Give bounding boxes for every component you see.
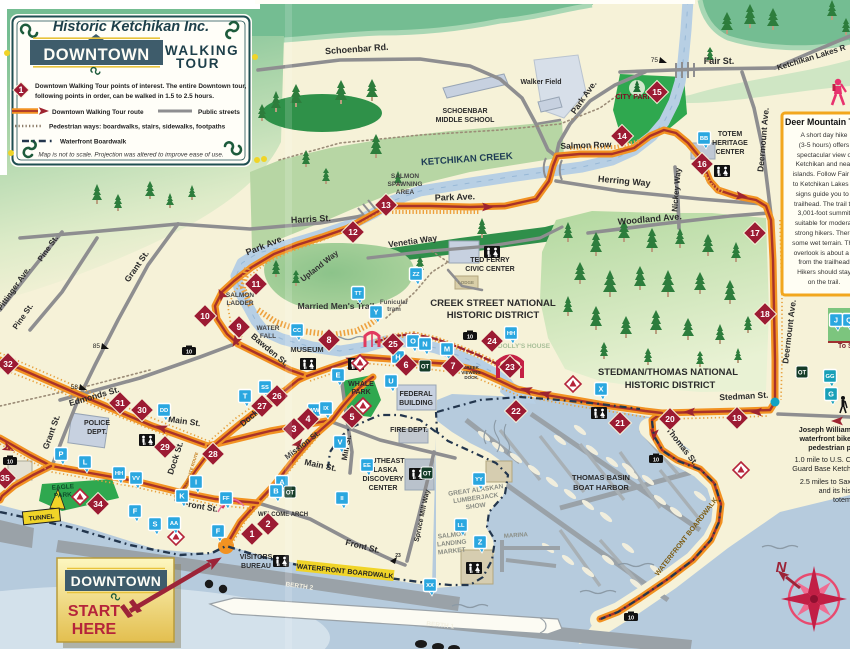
svg-text:ZZ: ZZ bbox=[412, 272, 420, 278]
svg-text:FF: FF bbox=[222, 496, 230, 502]
svg-text:Harris St.: Harris St. bbox=[291, 213, 331, 225]
svg-text:F: F bbox=[133, 507, 138, 516]
svg-text:VV: VV bbox=[132, 476, 140, 482]
svg-text:12: 12 bbox=[348, 227, 358, 237]
svg-text:and its his: and its his bbox=[819, 486, 850, 495]
svg-text:VISITORS: VISITORS bbox=[240, 554, 273, 561]
svg-text:15: 15 bbox=[652, 87, 662, 97]
svg-text:Guard Base Ketch: Guard Base Ketch bbox=[792, 464, 850, 473]
svg-text:24: 24 bbox=[487, 336, 497, 346]
svg-text:Park Ave.: Park Ave. bbox=[435, 191, 476, 202]
svg-text:TOTEM: TOTEM bbox=[718, 131, 743, 138]
svg-text:X: X bbox=[598, 385, 603, 394]
svg-text:Z: Z bbox=[478, 538, 483, 547]
svg-text:9: 9 bbox=[236, 322, 241, 332]
svg-text:trailhead. The trail to: trailhead. The trail to bbox=[794, 201, 850, 208]
svg-text:20: 20 bbox=[665, 414, 675, 424]
svg-text:Historic Ketchikan Inc.: Historic Ketchikan Inc. bbox=[53, 19, 209, 35]
svg-text:IX: IX bbox=[323, 406, 329, 412]
svg-text:S: S bbox=[152, 520, 157, 529]
svg-text:SALMON: SALMON bbox=[391, 173, 419, 180]
svg-text:BOAT HARBOR: BOAT HARBOR bbox=[573, 483, 629, 492]
svg-text:22: 22 bbox=[511, 406, 521, 416]
svg-text:PARK: PARK bbox=[54, 491, 73, 499]
svg-text:Downtown Walking Tour points o: Downtown Walking Tour points of interest… bbox=[35, 83, 246, 90]
svg-text:10: 10 bbox=[653, 457, 659, 463]
svg-text:OT: OT bbox=[423, 471, 432, 477]
svg-text:35: 35 bbox=[0, 473, 10, 483]
svg-text:CENTER: CENTER bbox=[369, 485, 398, 492]
svg-text:N: N bbox=[776, 559, 788, 576]
svg-text:DOWNTOWN: DOWNTOWN bbox=[43, 46, 149, 64]
svg-text:LL: LL bbox=[457, 523, 465, 529]
svg-text:Deer Mountain T: Deer Mountain T bbox=[785, 117, 850, 127]
svg-text:To S: To S bbox=[838, 343, 850, 350]
svg-text:10: 10 bbox=[467, 334, 473, 340]
svg-text:27: 27 bbox=[257, 401, 267, 411]
svg-text:DOCK: DOCK bbox=[464, 375, 478, 380]
svg-text:CIVIC CENTER: CIVIC CENTER bbox=[465, 266, 514, 273]
svg-text:2: 2 bbox=[265, 519, 270, 529]
svg-text:21: 21 bbox=[615, 418, 625, 428]
svg-text:SALMON: SALMON bbox=[226, 292, 254, 299]
svg-text:FEDERAL: FEDERAL bbox=[399, 391, 433, 398]
svg-text:STEDMAN/THOMAS NATIONAL: STEDMAN/THOMAS NATIONAL bbox=[598, 366, 738, 377]
svg-text:HISTORIC DISTRICT: HISTORIC DISTRICT bbox=[447, 310, 540, 321]
svg-text:YY: YY bbox=[475, 477, 483, 483]
svg-text:totem: totem bbox=[833, 495, 850, 504]
svg-text:islands. Follow Fair S: islands. Follow Fair S bbox=[793, 171, 850, 178]
svg-text:I: I bbox=[195, 478, 197, 487]
svg-text:6: 6 bbox=[403, 360, 408, 370]
svg-text:Y: Y bbox=[373, 308, 378, 317]
svg-text:1: 1 bbox=[18, 85, 23, 95]
svg-text:FALL: FALL bbox=[260, 333, 276, 340]
svg-text:TOUR: TOUR bbox=[176, 56, 220, 71]
svg-text:2.5 miles to Sax: 2.5 miles to Sax bbox=[800, 477, 850, 486]
svg-text:strong hikers. There: strong hikers. There bbox=[795, 230, 850, 237]
svg-text:A short day hike: A short day hike bbox=[801, 132, 848, 139]
svg-text:19: 19 bbox=[732, 413, 742, 423]
svg-text:DD: DD bbox=[160, 408, 168, 414]
svg-text:M: M bbox=[444, 345, 450, 354]
svg-text:HH: HH bbox=[115, 471, 123, 477]
svg-text:Married Men's Trail: Married Men's Trail bbox=[298, 301, 375, 311]
svg-text:85: 85 bbox=[93, 343, 101, 350]
svg-text:HISTORIC DISTRICT: HISTORIC DISTRICT bbox=[625, 379, 716, 390]
svg-text:on the trail.: on the trail. bbox=[808, 279, 841, 286]
svg-text:14: 14 bbox=[617, 131, 627, 141]
svg-text:G: G bbox=[828, 390, 834, 399]
svg-text:8: 8 bbox=[326, 335, 331, 345]
svg-text:WHALE: WHALE bbox=[348, 381, 374, 388]
svg-text:29: 29 bbox=[160, 442, 170, 452]
svg-text:Downtown Walking Tour route: Downtown Walking Tour route bbox=[52, 109, 144, 116]
svg-text:AA: AA bbox=[170, 521, 179, 527]
svg-text:WATER: WATER bbox=[257, 325, 280, 332]
svg-text:SCHOENBAR: SCHOENBAR bbox=[442, 108, 487, 115]
svg-text:OT: OT bbox=[421, 364, 430, 370]
svg-text:CITY PARK: CITY PARK bbox=[615, 94, 652, 101]
svg-text:BB: BB bbox=[700, 136, 708, 142]
svg-text:17: 17 bbox=[750, 228, 760, 238]
svg-text:spectacular view o: spectacular view o bbox=[797, 152, 850, 159]
svg-text:CREEK STREET NATIONAL: CREEK STREET NATIONAL bbox=[430, 298, 556, 309]
svg-text:pedestrian p: pedestrian p bbox=[808, 443, 850, 452]
svg-text:16: 16 bbox=[697, 159, 707, 169]
svg-text:3,001-foot summit: 3,001-foot summit bbox=[798, 210, 850, 217]
svg-text:to Ketchikan Lakes R: to Ketchikan Lakes R bbox=[793, 181, 850, 188]
svg-text:(3-5 hours) offers: (3-5 hours) offers bbox=[799, 142, 850, 149]
svg-text:K: K bbox=[179, 492, 185, 501]
svg-text:some wet terrain. The: some wet terrain. The bbox=[792, 240, 850, 247]
svg-text:CENTER: CENTER bbox=[716, 149, 745, 156]
svg-text:following points in order, can: following points in order, can be walked… bbox=[35, 93, 214, 100]
svg-text:1.0 mile to U.S. C: 1.0 mile to U.S. C bbox=[795, 455, 850, 464]
svg-text:4: 4 bbox=[305, 414, 310, 424]
svg-text:10: 10 bbox=[186, 349, 192, 355]
svg-text:HH: HH bbox=[507, 331, 515, 337]
svg-text:13: 13 bbox=[381, 200, 391, 210]
svg-text:J: J bbox=[834, 316, 838, 325]
svg-text:MIDDLE SCHOOL: MIDDLE SCHOOL bbox=[436, 117, 495, 124]
svg-text:Salmon Row: Salmon Row bbox=[560, 139, 612, 151]
svg-text:HERITAGE: HERITAGE bbox=[712, 140, 748, 147]
svg-text:POLICE: POLICE bbox=[84, 420, 110, 427]
svg-text:V: V bbox=[337, 438, 342, 447]
svg-text:START: START bbox=[68, 603, 120, 620]
svg-text:suitable for moderat: suitable for moderat bbox=[795, 220, 850, 227]
svg-text:DOWNTOWN: DOWNTOWN bbox=[71, 573, 162, 589]
svg-text:OT: OT bbox=[798, 370, 807, 376]
svg-text:Funicular: Funicular bbox=[380, 299, 409, 306]
svg-text:Walker Field: Walker Field bbox=[521, 79, 562, 86]
svg-text:Hikers should stay: Hikers should stay bbox=[797, 269, 850, 276]
svg-text:T: T bbox=[243, 392, 248, 401]
svg-text:32: 32 bbox=[3, 359, 13, 369]
svg-text:SPAWNING: SPAWNING bbox=[388, 181, 423, 188]
svg-text:FIRE DEPT.: FIRE DEPT. bbox=[390, 427, 428, 434]
svg-text:II: II bbox=[340, 496, 344, 502]
svg-text:PARK: PARK bbox=[351, 389, 370, 396]
svg-text:1: 1 bbox=[249, 529, 254, 539]
svg-text:5: 5 bbox=[349, 412, 354, 422]
svg-text:DISCOVERY: DISCOVERY bbox=[363, 476, 404, 483]
svg-text:from the trailhead: from the trailhead bbox=[798, 259, 850, 266]
svg-text:Ketchikan and near: Ketchikan and near bbox=[796, 161, 850, 168]
svg-text:EE: EE bbox=[363, 463, 371, 469]
svg-text:25: 25 bbox=[388, 339, 398, 349]
svg-text:O: O bbox=[410, 337, 416, 346]
svg-text:CC: CC bbox=[293, 328, 302, 334]
svg-text:TED FERRY: TED FERRY bbox=[470, 257, 510, 264]
svg-text:F: F bbox=[216, 527, 221, 536]
svg-text:MUSEUM: MUSEUM bbox=[290, 345, 323, 354]
svg-text:LODGE: LODGE bbox=[458, 280, 474, 285]
svg-text:BUILDING: BUILDING bbox=[399, 400, 433, 407]
svg-text:HERE: HERE bbox=[72, 621, 117, 638]
svg-text:SS: SS bbox=[261, 385, 269, 391]
svg-text:Fair St.: Fair St. bbox=[704, 56, 735, 66]
svg-text:31: 31 bbox=[115, 398, 125, 408]
svg-text:P: P bbox=[58, 450, 63, 459]
svg-text:Map is not to scale. Projectio: Map is not to scale. Projection was alte… bbox=[38, 152, 223, 159]
svg-text:B: B bbox=[273, 487, 279, 496]
svg-text:DOLLY'S HOUSE: DOLLY'S HOUSE bbox=[498, 343, 551, 350]
svg-text:THOMAS BASIN: THOMAS BASIN bbox=[572, 473, 630, 482]
svg-text:34: 34 bbox=[93, 499, 103, 509]
svg-text:XX: XX bbox=[426, 583, 434, 589]
svg-text:DEPT.: DEPT. bbox=[87, 429, 107, 436]
svg-text:U: U bbox=[388, 377, 393, 386]
svg-text:Q: Q bbox=[846, 316, 850, 325]
svg-text:58: 58 bbox=[71, 384, 79, 391]
svg-text:18: 18 bbox=[760, 309, 770, 319]
svg-text:Waterfront Boardwalk: Waterfront Boardwalk bbox=[60, 139, 127, 146]
svg-text:Public streets: Public streets bbox=[198, 109, 240, 116]
svg-text:signs guide you to t: signs guide you to t bbox=[796, 191, 850, 198]
svg-text:BUREAU: BUREAU bbox=[241, 563, 271, 570]
svg-text:Pedestrian ways: boardwalks, s: Pedestrian ways: boardwalks, stairs, sid… bbox=[49, 124, 226, 131]
svg-text:LADDER: LADDER bbox=[226, 300, 253, 307]
svg-text:30: 30 bbox=[137, 405, 147, 415]
svg-text:waterfront bike: waterfront bike bbox=[798, 434, 850, 443]
svg-text:tram: tram bbox=[387, 306, 401, 313]
svg-text:N: N bbox=[422, 340, 427, 349]
svg-text:26: 26 bbox=[272, 391, 282, 401]
svg-text:10: 10 bbox=[7, 459, 13, 465]
svg-text:10: 10 bbox=[628, 615, 634, 621]
svg-text:overlook is about a n: overlook is about a n bbox=[794, 250, 850, 257]
svg-text:L: L bbox=[83, 458, 88, 467]
svg-text:E: E bbox=[335, 371, 340, 380]
svg-text:3: 3 bbox=[291, 424, 296, 434]
svg-text:28: 28 bbox=[208, 449, 218, 459]
svg-text:11: 11 bbox=[252, 279, 261, 289]
svg-text:23: 23 bbox=[505, 362, 515, 372]
svg-text:AREA: AREA bbox=[396, 189, 415, 196]
svg-text:Joseph William: Joseph William bbox=[799, 425, 850, 434]
svg-text:7: 7 bbox=[450, 361, 455, 371]
svg-text:TT: TT bbox=[354, 291, 362, 297]
svg-text:GG: GG bbox=[825, 374, 835, 380]
svg-text:10: 10 bbox=[200, 311, 210, 321]
svg-text:75: 75 bbox=[651, 57, 659, 64]
